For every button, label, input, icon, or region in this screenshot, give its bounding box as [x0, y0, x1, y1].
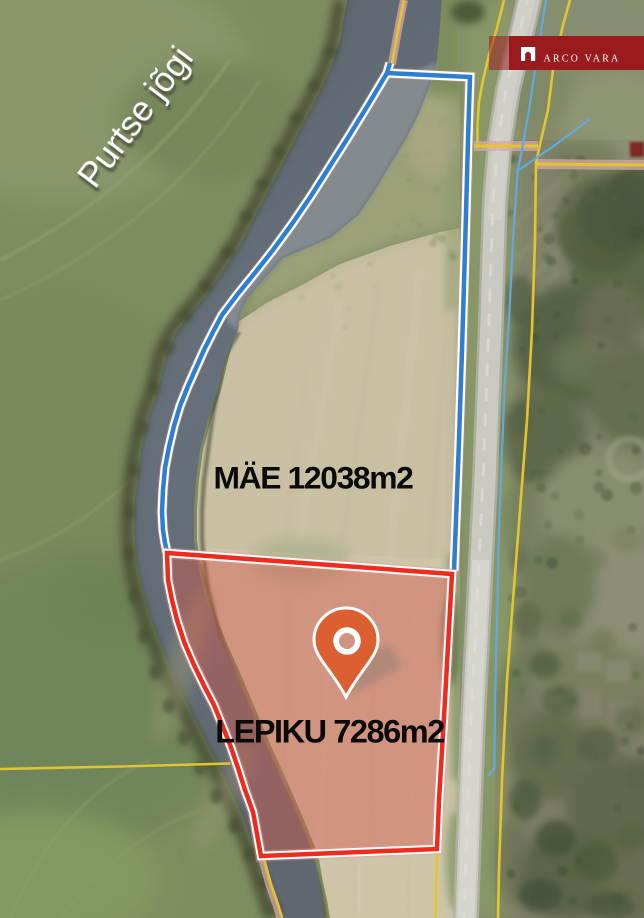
svg-text:ARCO VARA: ARCO VARA	[544, 54, 621, 65]
svg-text:MÄE 12038m2: MÄE 12038m2	[214, 459, 414, 495]
svg-text:LEPIKU 7286m2: LEPIKU 7286m2	[215, 714, 444, 750]
